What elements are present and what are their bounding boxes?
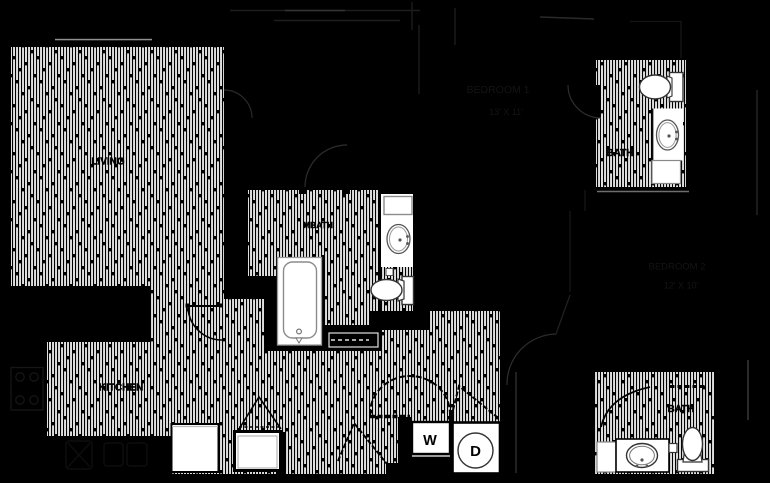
svg-text:12' X 10': 12' X 10' (664, 281, 699, 291)
svg-text:BATH: BATH (606, 148, 633, 159)
svg-text:MBATH: MBATH (303, 220, 333, 230)
svg-text:13' X 11': 13' X 11' (489, 107, 523, 117)
svg-text:KITCHEN: KITCHEN (99, 383, 143, 394)
svg-text:BEDROOM 2: BEDROOM 2 (648, 262, 705, 273)
svg-text:LIVING: LIVING (91, 157, 125, 168)
svg-text:D: D (470, 443, 481, 460)
svg-text:W: W (423, 433, 437, 449)
svg-text:BATH: BATH (667, 404, 694, 415)
svg-text:BEDROOM 1: BEDROOM 1 (466, 84, 529, 96)
